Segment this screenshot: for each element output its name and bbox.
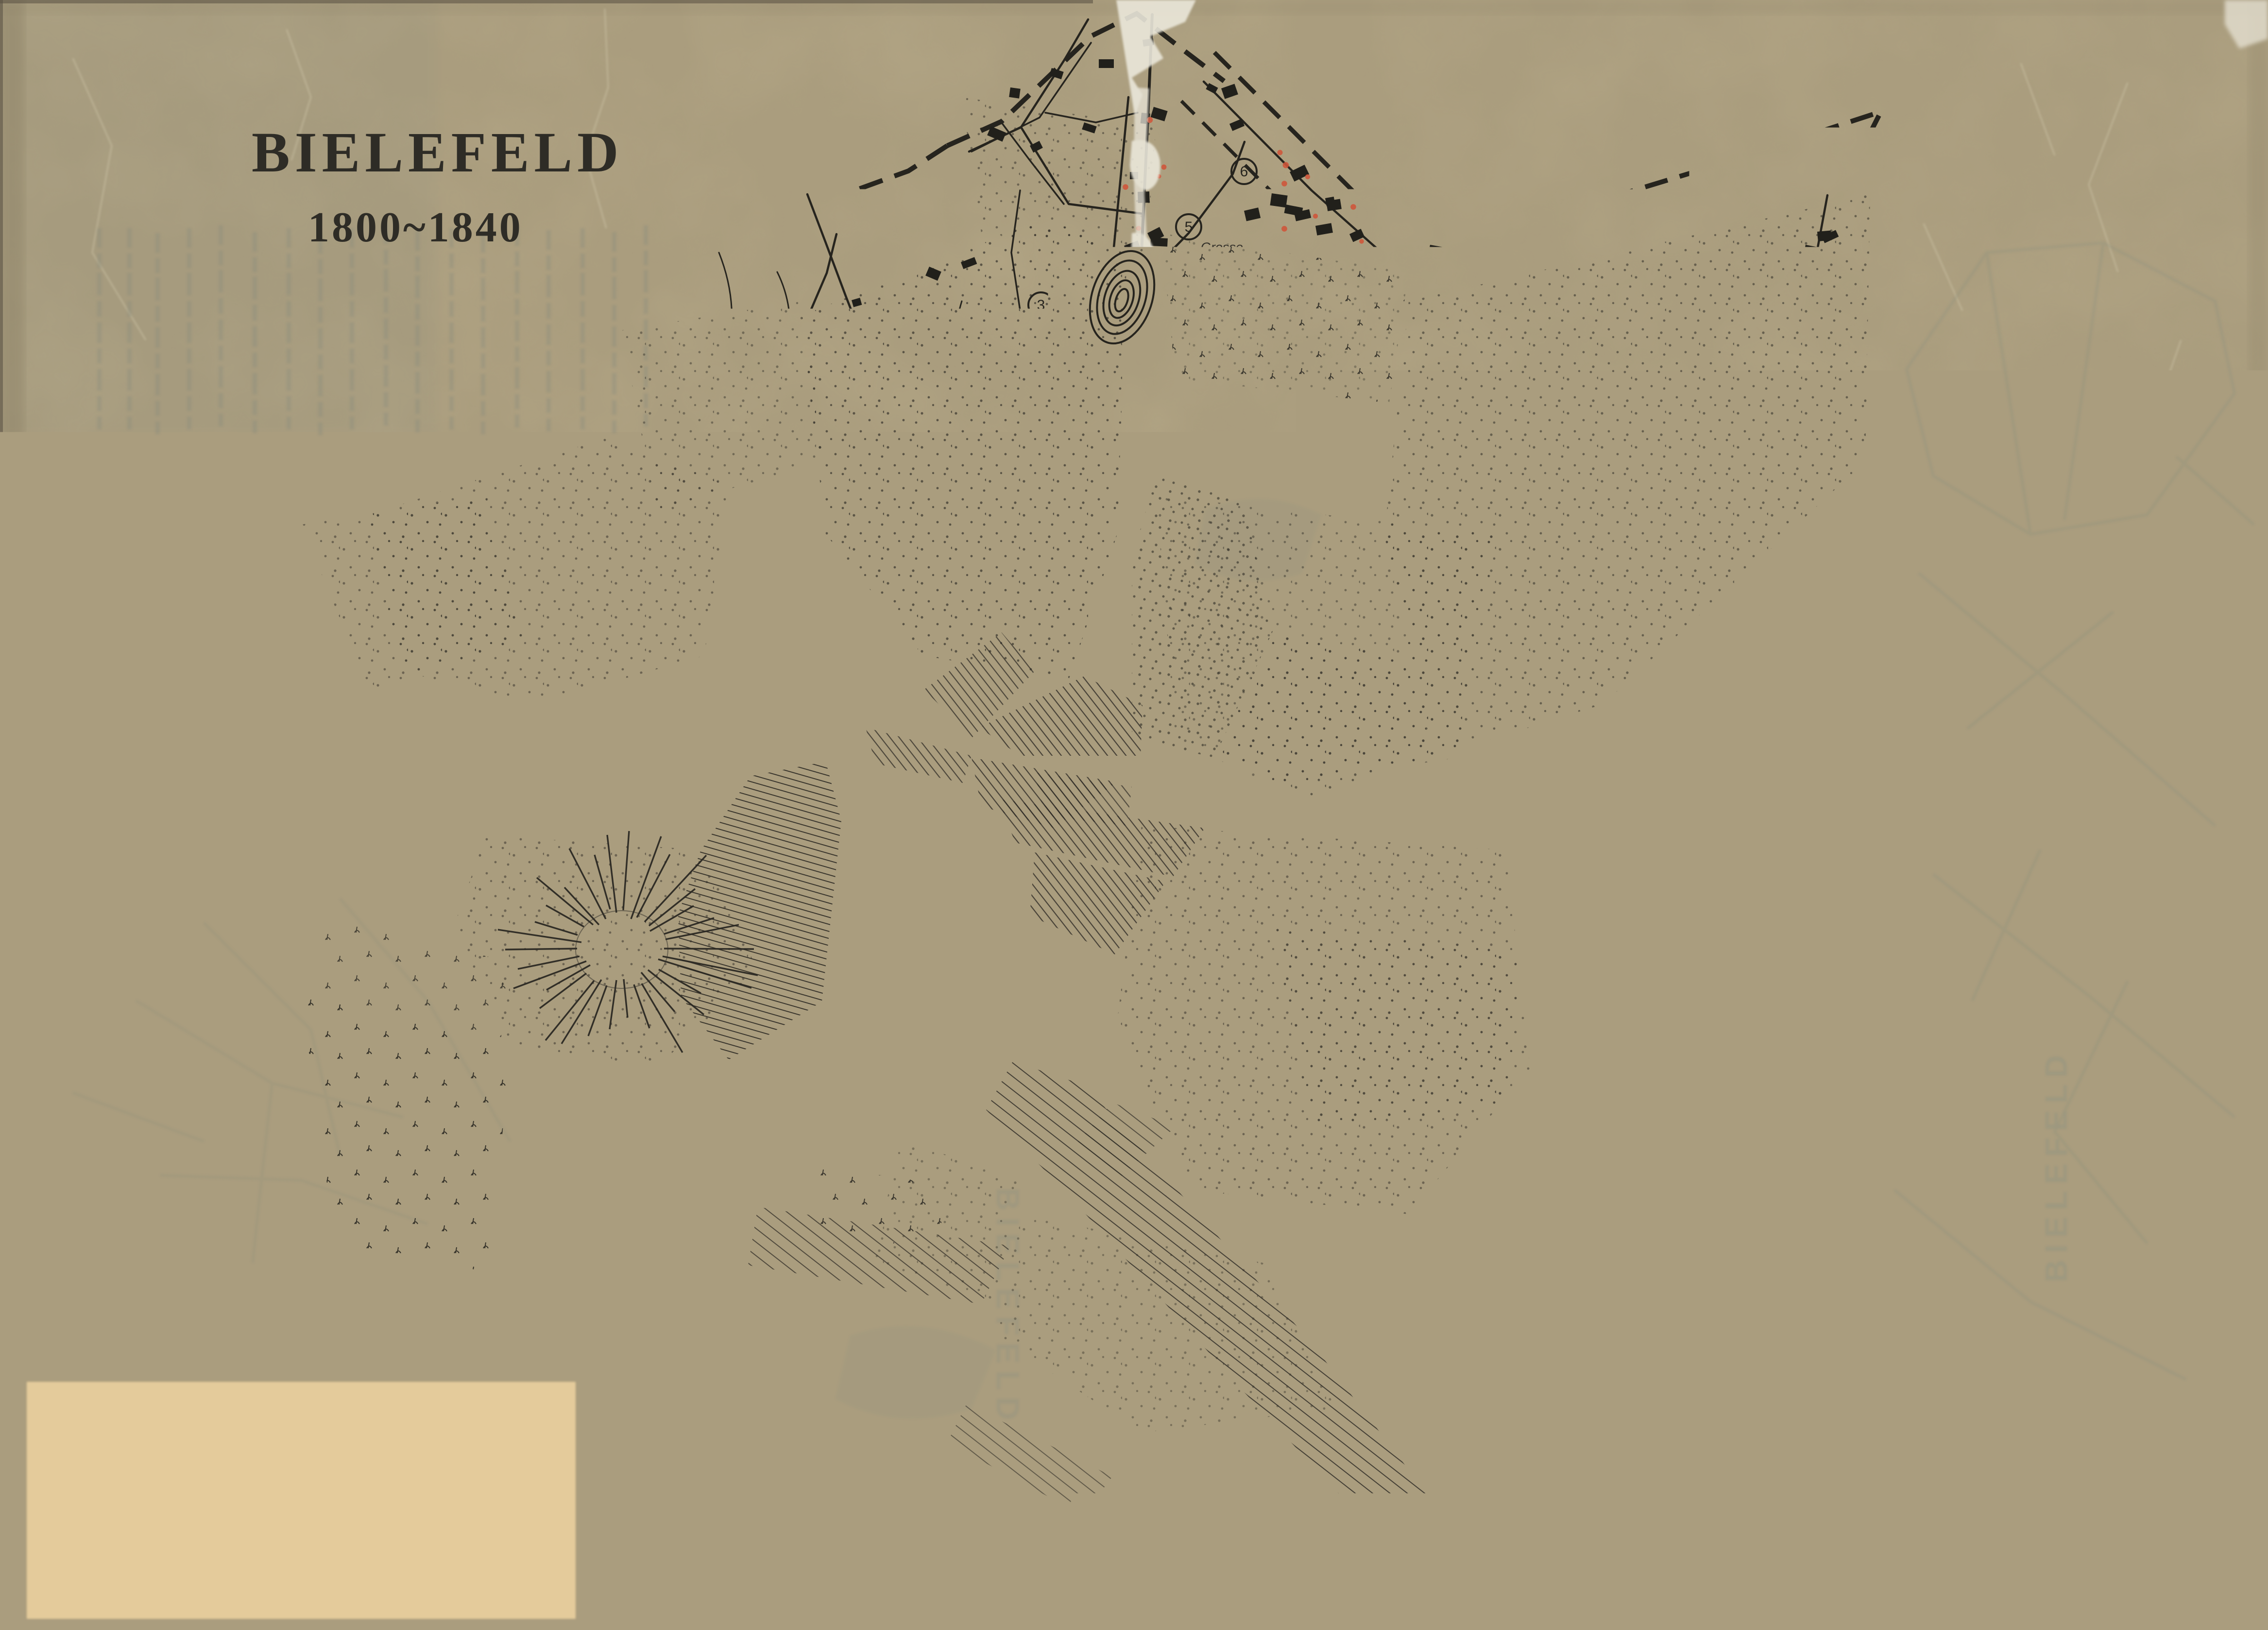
svg-text:23: 23 (616, 843, 632, 859)
svg-text:14: 14 (1632, 1133, 1646, 1146)
svg-text:FELDWEG , jetzt Weststr. - T: FELDWEG , jetzt Weststr. - Turmstr. (1661, 1374, 1856, 1387)
svg-text:8: 8 (1636, 993, 1642, 1006)
svg-text:Fieken oder Holzbach: Fieken oder Holzbach (1179, 577, 1264, 587)
svg-text:LANGEN HAGEN: LANGEN HAGEN (1661, 1289, 1808, 1304)
svg-text:12: 12 (1303, 885, 1319, 901)
svg-text:CANTON III: CANTON III (1058, 596, 1177, 617)
svg-text:" " Bünderstr. (Te: " " Bünderstr. (Teil) (1686, 1463, 1826, 1477)
svg-text:6: 6 (1240, 164, 1248, 180)
svg-text:FELDWEG , jetzt Brüderpfad: FELDWEG , jetzt Brüderpfad (1661, 993, 1817, 1006)
svg-text:" " Oststrasse: " " Oststrasse (1686, 1177, 1799, 1191)
svg-text:CANTON I: CANTON I (588, 713, 693, 734)
svg-text:16: 16 (1450, 945, 1466, 961)
svg-text:NEUE SCHILDESCHER CHAUSSEE,: NEUE SCHILDESCHER CHAUSSEE, (1661, 889, 1979, 905)
svg-text:12: 12 (1632, 1088, 1646, 1102)
svg-text:CANTON IV: CANTON IV (1183, 1103, 1302, 1124)
svg-text:6: 6 (1636, 948, 1642, 962)
svg-text:Masch: Masch (1306, 524, 1345, 538)
svg-text:Pott: Pott (1228, 383, 1247, 394)
svg-text:(HAKENORT): (HAKENORT) (1414, 498, 1471, 509)
svg-text:ZEHNTWEG: ZEHNTWEG (1661, 1244, 1765, 1259)
svg-text:Hakenort: Hakenort (1354, 622, 1408, 637)
svg-text:DRECKLENSTR , jetzt Mittelst: DRECKLENSTR , jetzt Mittelstrasse (1661, 1063, 1856, 1076)
svg-text:Grosse: Grosse (1201, 240, 1243, 255)
svg-text:FELDWEG , " Fröbelstrasse: FELDWEG , " Fröbelstrasse (1661, 1110, 1829, 1124)
svg-text:7: 7 (1636, 969, 1642, 983)
svg-text:26: 26 (686, 357, 702, 374)
svg-text:1800~1840: 1800~1840 (308, 204, 523, 251)
svg-text:9: 9 (1019, 814, 1027, 830)
svg-text:HEIDEN (Viehweide): HEIDEN (Viehweide) (1667, 705, 1851, 720)
svg-text:28: 28 (1632, 1463, 1646, 1477)
svg-text:Grenze des Gutes NIEDERMÜHL: Grenze des Gutes NIEDERMÜHLE (1667, 747, 1858, 761)
svg-text:5: 5 (1185, 219, 1193, 235)
svg-text:25: 25 (1632, 1396, 1646, 1409)
svg-text:jetzt Elsa Brändströmstrasse: jetzt Elsa Brändströmstrasse (1719, 1350, 1874, 1364)
svg-text:22: 22 (1632, 1312, 1646, 1326)
svg-text:27: 27 (1632, 1441, 1646, 1454)
svg-text:3: 3 (1636, 867, 1642, 881)
svg-text:9: 9 (1636, 1014, 1642, 1028)
svg-text:28: 28 (830, 765, 846, 781)
svg-text:7: 7 (1030, 878, 1038, 894)
svg-text:27: 27 (873, 402, 889, 418)
svg-text:11: 11 (1633, 1063, 1645, 1076)
svg-text:Tonsplatz: Tonsplatz (1461, 789, 1511, 802)
svg-text:jetzt Engersche Strasse: jetzt Engersche Strasse (1719, 906, 1848, 920)
svg-text:CANTONSGRENZEN: CANTONSGRENZEN (1667, 724, 1845, 740)
svg-text:20: 20 (660, 1076, 676, 1092)
svg-text:" " Osnabrückerstr: " " Osnabrückerstr. (1686, 1418, 1827, 1432)
svg-text:KUHSTRASSE, jetzt Waldeckstr.-: KUHSTRASSE, jetzt Waldeckstr.-FALKSCHULE (1661, 969, 1921, 983)
svg-text:23: 23 (1632, 1335, 1646, 1348)
svg-text:" " Spindelstrasse: " " Spindelstrasse (1686, 1201, 1821, 1214)
svg-text:1: 1 (1636, 811, 1642, 825)
svg-text:Hartlager: Hartlager (1646, 604, 1700, 619)
svg-text:Bebauung der FeldmarK bis: Bebauung der FeldmarK bis 1825 (1667, 766, 1849, 780)
svg-text:Holz: Holz (1672, 622, 1699, 637)
svg-text:Poggenbaum: Poggenbaum (1405, 781, 1468, 793)
svg-text:21: 21 (567, 1172, 583, 1188)
svg-text:Kessel: Kessel (1034, 689, 1074, 703)
svg-text:Oelmühle: Oelmühle (1385, 875, 1431, 887)
svg-text:Herfordische: Herfordische (1272, 504, 1346, 519)
svg-text:" " Wiesenstrasse: " " Wiesenstrasse (1686, 1224, 1821, 1238)
svg-text:AN DER LANDWEHR: AN DER LANDWEHR (1661, 923, 1843, 939)
svg-text:ALTER SCHILDESCHER WEG: ALTER SCHILDESCHER WEG (1661, 866, 1922, 882)
svg-text:Wilker: Wilker (1264, 352, 1292, 363)
svg-text:17: 17 (1632, 1201, 1646, 1214)
svg-text:3: 3 (1037, 297, 1045, 313)
svg-text:14: 14 (1233, 1027, 1249, 1043)
svg-text:5: 5 (1636, 925, 1642, 938)
svg-text:Hammermühle: Hammermühle (1356, 907, 1444, 922)
svg-text:ALLEE , jetzt Mühlenstrasse: ALLEE , jetzt Mühlenstrasse (1661, 1087, 1917, 1102)
svg-text:" " Sadowastrasse: " " Sadowastrasse (1686, 1155, 1825, 1169)
svg-text:BRÜDERPFAD, jetzt Körnerstra: BRÜDERPFAD, jetzt Körnerstrasse (1661, 1014, 1852, 1028)
svg-text:10: 10 (1068, 1053, 1084, 1069)
svg-text:Baum: Baum (1269, 364, 1294, 374)
svg-text:FELDWEG , jetzt Waldstrasse: FELDWEG , jetzt Waldstrasse (1661, 1312, 1824, 1326)
svg-text:16: 16 (1632, 1177, 1646, 1191)
svg-text:15: 15 (1173, 892, 1189, 908)
svg-text:STADTHEIDERSTRASSE: STADTHEIDERSTRASSE (1661, 947, 1878, 962)
svg-text:21: 21 (1632, 1290, 1646, 1304)
svg-text:CANTON V: CANTON V (1568, 397, 1681, 418)
svg-text:Landhaus: Landhaus (1218, 369, 1263, 380)
svg-text:13: 13 (1285, 1235, 1301, 1251)
svg-text:GÄRTEN: GÄRTEN (1667, 658, 1743, 674)
svg-text:" " Oelmühlenstras: " " Oelmühlenstrasse (1686, 1133, 1839, 1146)
svg-text:Nieder mühle: Nieder mühle (1267, 916, 1330, 928)
svg-text:mit GOSEPOL , jetzt Jahnpla: mit GOSEPOL , jetzt Jahnplatz (1696, 827, 1862, 840)
svg-text:WIESEN: WIESEN (1667, 681, 1740, 697)
svg-text:← Lutter: ← Lutter (495, 1404, 540, 1417)
svg-text:22: 22 (546, 798, 562, 814)
svg-text:18: 18 (1198, 717, 1214, 733)
svg-text:24: 24 (660, 609, 676, 625)
svg-text:BIELEFELD: BIELEFELD (2039, 1048, 2074, 1282)
svg-text:13: 13 (1632, 1110, 1646, 1124)
svg-text:" " Am Kamphof: " " Am Kamphof (1686, 1441, 1812, 1454)
svg-text:Gartenweg vor der NOTPFORTE: Gartenweg vor der NOTPFORTE, (1661, 1335, 1843, 1348)
svg-text:BIELEFELD: BIELEFELD (252, 120, 623, 184)
svg-text:brink: brink (1070, 740, 1099, 755)
svg-text:17: 17 (1355, 1105, 1371, 1121)
svg-text:CANTON II: CANTON II (951, 479, 1063, 501)
svg-text:19: 19 (1632, 1245, 1646, 1259)
svg-text:8: 8 (1098, 791, 1106, 807)
svg-text:15: 15 (1632, 1155, 1646, 1169)
svg-text:10: 10 (1632, 1037, 1646, 1051)
svg-text:2: 2 (922, 516, 930, 532)
svg-text:18: 18 (1632, 1224, 1646, 1238)
svg-text:20: 20 (1632, 1267, 1646, 1280)
svg-text:7: 7 (1094, 833, 1102, 849)
svg-text:24: 24 (1632, 1374, 1646, 1387)
svg-text:“ “: “ “ ” von 1825 bis 1840 (1700, 790, 1822, 803)
svg-text:Schildescher Heide: Schildescher Heide (1165, 260, 1278, 275)
svg-text:Bokelmühle: Bokelmühle (1437, 894, 1498, 907)
svg-text:25: 25 (493, 605, 509, 621)
svg-text:Walken oder Lohmühle: Walken oder Lohmühle (1471, 810, 1581, 822)
svg-text:HALLER POSTWEG: HALLER POSTWEG (1661, 1265, 1833, 1281)
svg-text:STEINWEG , jetzt Bahnhofstr.: STEINWEG , jetzt Bahnhofstr. (1661, 843, 1931, 858)
svg-text:20: 20 (503, 1283, 519, 1299)
svg-text:KALTE KÜCHE: KALTE KÜCHE (1661, 1036, 1790, 1052)
svg-text:4: 4 (1636, 891, 1642, 904)
svg-text:PLATZ VOR DEM NIEDERNTOR: PLATZ VOR DEM NIEDERNTOR (1661, 810, 1941, 825)
svg-text:Rodenbeke: Rodenbeke (1157, 862, 1212, 874)
svg-text:26: 26 (1632, 1418, 1646, 1432)
svg-text:" " Lampingstrasse: " " Lampingstrasse (1686, 1396, 1827, 1409)
svg-text:2: 2 (1636, 844, 1642, 858)
svg-text:1: 1 (963, 764, 971, 780)
svg-text:11: 11 (1054, 1109, 1069, 1125)
